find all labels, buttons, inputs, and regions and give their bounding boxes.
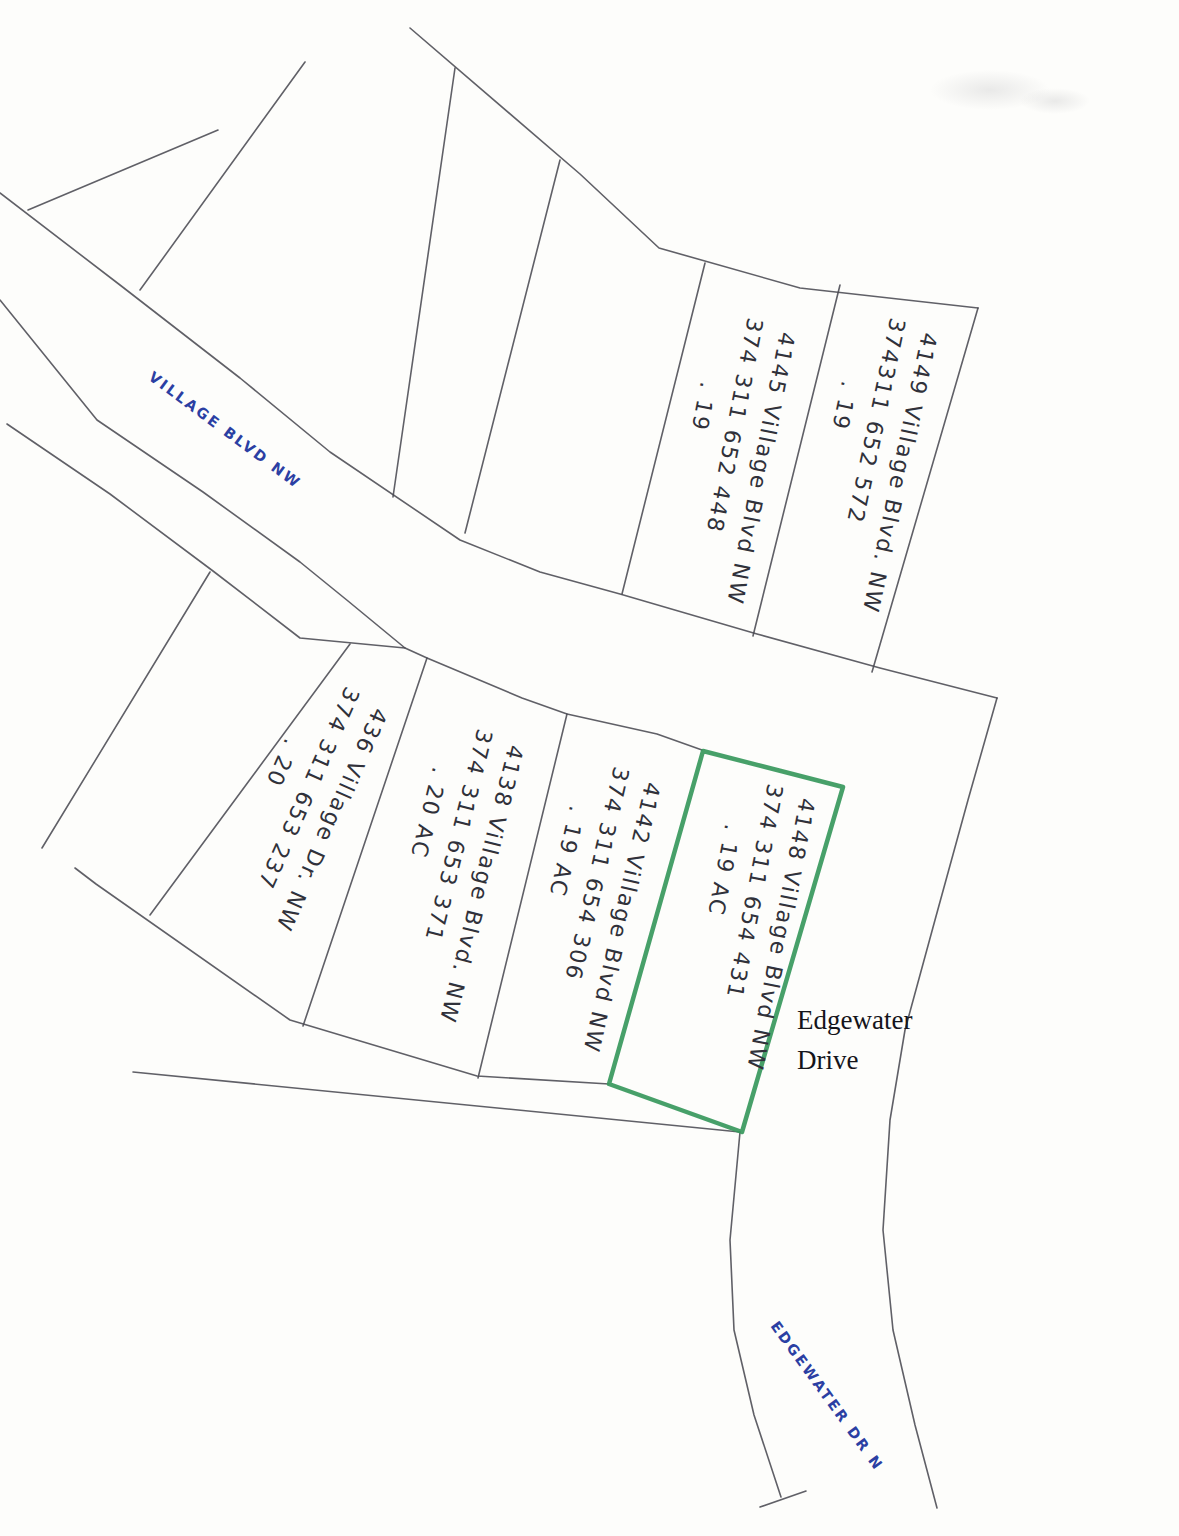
- north-parcel-divider-1: [28, 130, 218, 210]
- edgewater-west-edge: [730, 1132, 781, 1497]
- road-end-tick: [760, 1491, 806, 1507]
- area-label-line1: Edgewater: [797, 1000, 912, 1040]
- north-parcel-divider-3: [393, 68, 455, 497]
- north-parcel-divider-4: [465, 160, 560, 533]
- plat-map-canvas: 4149 Village Blvd. NW 374311 652 572 . 1…: [0, 0, 1179, 1536]
- north-parcel-divider-2: [140, 62, 305, 290]
- area-label-line2: Drive: [797, 1040, 912, 1080]
- edgewater-east-edge: [883, 698, 997, 1508]
- village-blvd-south-edge: [0, 300, 702, 750]
- southwest-strip-line: [7, 424, 405, 648]
- outer-boundary-top: [410, 28, 978, 308]
- bottom-wedge-line: [133, 1072, 740, 1132]
- southwest-parcel-divider: [42, 572, 210, 848]
- edgewater-drive-area-label: Edgewater Drive: [797, 1000, 912, 1080]
